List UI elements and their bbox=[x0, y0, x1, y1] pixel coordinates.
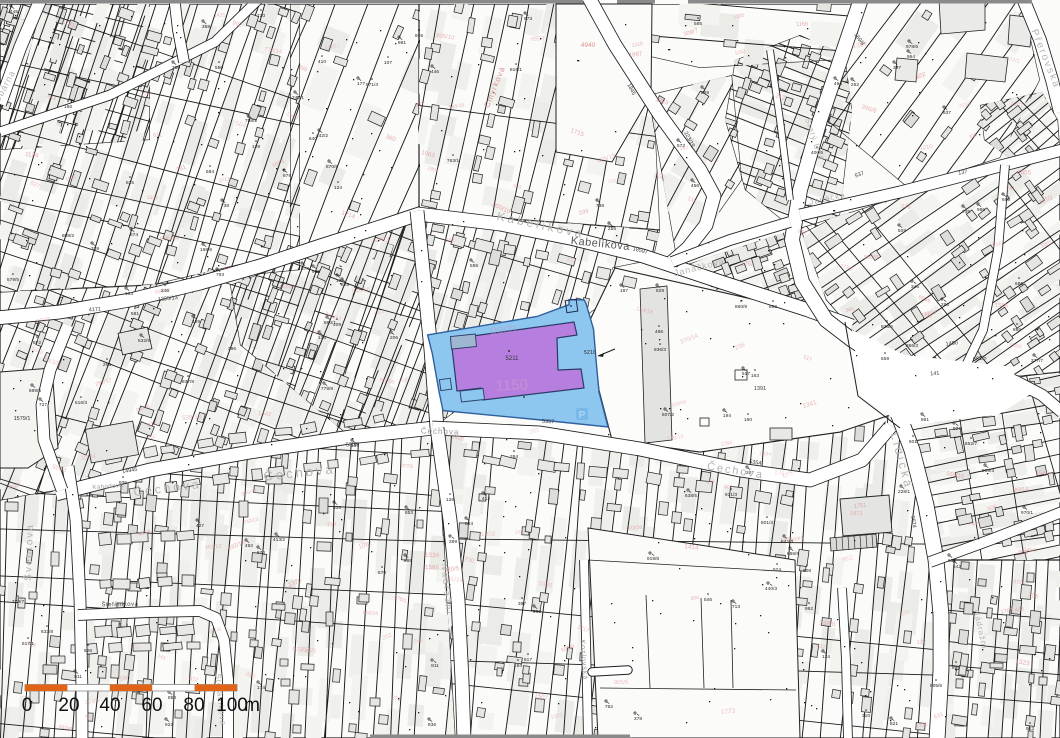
svg-text:637: 637 bbox=[943, 110, 951, 116]
svg-text:336: 336 bbox=[608, 178, 617, 185]
svg-text:194: 194 bbox=[514, 663, 522, 669]
svg-text:738: 738 bbox=[221, 203, 229, 209]
svg-text:655/7: 655/7 bbox=[531, 36, 545, 43]
svg-text:Štefánikova: Štefánikova bbox=[101, 601, 138, 609]
svg-text:579/5: 579/5 bbox=[7, 277, 20, 283]
svg-text:446: 446 bbox=[431, 69, 439, 75]
svg-text:852/7: 852/7 bbox=[965, 441, 978, 447]
svg-text:585: 585 bbox=[694, 21, 702, 27]
svg-text:816/1: 816/1 bbox=[510, 67, 523, 73]
svg-text:829: 829 bbox=[656, 288, 664, 294]
svg-text:P: P bbox=[579, 410, 586, 421]
svg-text:919/8: 919/8 bbox=[647, 556, 660, 562]
svg-text:581: 581 bbox=[131, 311, 139, 317]
svg-text:633/8: 633/8 bbox=[41, 629, 54, 635]
svg-text:978/6: 978/6 bbox=[906, 44, 919, 50]
svg-text:262: 262 bbox=[851, 82, 859, 88]
svg-text:1585: 1585 bbox=[425, 564, 440, 571]
svg-text:720: 720 bbox=[257, 13, 265, 19]
svg-text:569: 569 bbox=[701, 90, 709, 96]
svg-text:617/1: 617/1 bbox=[22, 641, 35, 647]
svg-text:poch.: poch. bbox=[490, 321, 520, 337]
svg-text:427: 427 bbox=[196, 523, 204, 529]
svg-text:686: 686 bbox=[1015, 281, 1023, 287]
svg-text:923: 923 bbox=[1026, 726, 1034, 732]
svg-text:397: 397 bbox=[518, 601, 526, 607]
svg-text:20: 20 bbox=[58, 695, 79, 716]
svg-text:5210: 5210 bbox=[584, 350, 596, 356]
svg-text:1391: 1391 bbox=[754, 386, 766, 392]
svg-text:808/2: 808/2 bbox=[62, 233, 75, 239]
svg-text:749/1: 749/1 bbox=[292, 95, 305, 101]
svg-text:532/9: 532/9 bbox=[138, 338, 151, 344]
svg-text:516/3: 516/3 bbox=[75, 400, 88, 406]
svg-text:931/3: 931/3 bbox=[725, 492, 738, 498]
svg-text:466: 466 bbox=[655, 329, 663, 335]
svg-text:163: 163 bbox=[751, 373, 759, 379]
svg-text:527/13: 527/13 bbox=[373, 237, 390, 244]
svg-text:825: 825 bbox=[126, 180, 134, 186]
svg-text:166: 166 bbox=[64, 104, 72, 110]
svg-text:4171: 4171 bbox=[89, 307, 102, 314]
svg-text:889/5: 889/5 bbox=[29, 388, 42, 394]
svg-text:1394: 1394 bbox=[759, 451, 772, 458]
svg-text:779/8: 779/8 bbox=[321, 386, 334, 392]
svg-text:881: 881 bbox=[398, 40, 406, 46]
svg-text:1166: 1166 bbox=[796, 22, 808, 28]
svg-text:187: 187 bbox=[620, 288, 628, 294]
svg-text:811: 811 bbox=[431, 663, 439, 669]
svg-text:555: 555 bbox=[470, 263, 478, 269]
svg-text:163: 163 bbox=[125, 291, 133, 297]
svg-text:429: 429 bbox=[192, 319, 200, 325]
svg-text:762: 762 bbox=[605, 704, 613, 710]
svg-text:177: 177 bbox=[357, 81, 365, 87]
svg-text:801/4: 801/4 bbox=[761, 520, 774, 526]
svg-text:874: 874 bbox=[130, 232, 138, 238]
svg-text:129: 129 bbox=[252, 144, 260, 150]
svg-text:845/4: 845/4 bbox=[1023, 547, 1037, 554]
svg-text:174: 174 bbox=[257, 685, 265, 691]
svg-text:713: 713 bbox=[732, 604, 740, 610]
svg-text:509: 509 bbox=[898, 228, 906, 234]
svg-text:399: 399 bbox=[449, 539, 457, 545]
svg-text:Čechova: Čechova bbox=[421, 426, 460, 436]
svg-text:827: 827 bbox=[223, 265, 232, 272]
svg-text:m: m bbox=[244, 695, 260, 716]
svg-text:137: 137 bbox=[958, 169, 968, 176]
svg-text:507/2: 507/2 bbox=[662, 412, 675, 418]
svg-text:526: 526 bbox=[84, 648, 92, 654]
svg-text:124: 124 bbox=[822, 654, 830, 660]
svg-text:329: 329 bbox=[91, 246, 99, 252]
svg-text:445: 445 bbox=[10, 9, 18, 15]
svg-text:299: 299 bbox=[404, 558, 412, 564]
svg-text:603: 603 bbox=[724, 484, 733, 491]
svg-text:265: 265 bbox=[103, 362, 111, 368]
svg-text:456: 456 bbox=[691, 183, 699, 189]
svg-text:835: 835 bbox=[333, 505, 341, 511]
svg-text:638/5: 638/5 bbox=[685, 493, 698, 499]
svg-text:241: 241 bbox=[1006, 186, 1015, 192]
svg-text:793: 793 bbox=[216, 272, 224, 278]
svg-text:806: 806 bbox=[690, 595, 699, 602]
svg-text:872: 872 bbox=[33, 340, 41, 346]
svg-text:870/5: 870/5 bbox=[326, 164, 339, 170]
svg-text:132: 132 bbox=[916, 639, 926, 646]
svg-text:979: 979 bbox=[283, 173, 291, 179]
svg-text:905/5: 905/5 bbox=[930, 683, 943, 689]
svg-text:260: 260 bbox=[414, 638, 423, 645]
svg-text:617: 617 bbox=[524, 657, 532, 663]
svg-text:763/1: 763/1 bbox=[447, 158, 460, 164]
svg-text:413/2: 413/2 bbox=[273, 537, 286, 543]
svg-text:542: 542 bbox=[953, 564, 961, 570]
svg-text:853: 853 bbox=[405, 510, 413, 516]
svg-text:922: 922 bbox=[165, 722, 173, 728]
svg-text:524: 524 bbox=[773, 567, 781, 573]
svg-text:834: 834 bbox=[465, 521, 473, 527]
svg-text:661: 661 bbox=[914, 73, 926, 81]
svg-text:194: 194 bbox=[723, 413, 731, 419]
svg-text:992: 992 bbox=[805, 606, 813, 612]
svg-text:440/3: 440/3 bbox=[765, 586, 778, 592]
svg-text:1150: 1150 bbox=[495, 376, 528, 394]
svg-text:358: 358 bbox=[202, 24, 210, 30]
svg-text:80: 80 bbox=[183, 695, 204, 716]
svg-text:837/8: 837/8 bbox=[182, 379, 195, 385]
svg-text:965: 965 bbox=[415, 33, 423, 39]
svg-text:970/1: 970/1 bbox=[1021, 510, 1034, 516]
svg-text:249/8: 249/8 bbox=[819, 620, 836, 628]
svg-text:60: 60 bbox=[141, 695, 162, 716]
svg-text:377/7: 377/7 bbox=[1031, 358, 1044, 364]
svg-text:377/5: 377/5 bbox=[401, 463, 414, 470]
svg-text:902: 902 bbox=[533, 609, 541, 615]
svg-text:40: 40 bbox=[99, 695, 120, 716]
svg-text:938/2: 938/2 bbox=[881, 324, 894, 330]
svg-text:650/16: 650/16 bbox=[363, 610, 379, 617]
svg-text:821: 821 bbox=[890, 721, 898, 727]
svg-text:546: 546 bbox=[704, 597, 712, 603]
svg-text:550/4: 550/4 bbox=[864, 255, 878, 261]
svg-text:936/3: 936/3 bbox=[654, 347, 667, 353]
svg-text:397: 397 bbox=[893, 65, 901, 71]
svg-text:968: 968 bbox=[312, 269, 320, 275]
svg-text:637: 637 bbox=[948, 558, 956, 564]
svg-text:1555: 1555 bbox=[1017, 169, 1032, 177]
svg-text:1232: 1232 bbox=[147, 195, 158, 201]
svg-text:246: 246 bbox=[161, 288, 169, 294]
svg-text:674: 674 bbox=[257, 550, 265, 556]
svg-text:642/3: 642/3 bbox=[781, 539, 794, 545]
svg-text:128: 128 bbox=[446, 497, 454, 503]
svg-text:911: 911 bbox=[74, 674, 82, 680]
svg-text:283: 283 bbox=[941, 302, 949, 308]
svg-text:378: 378 bbox=[634, 716, 642, 722]
svg-text:141: 141 bbox=[930, 371, 940, 378]
svg-text:1752: 1752 bbox=[741, 261, 755, 268]
svg-text:0: 0 bbox=[22, 695, 33, 716]
svg-text:666/9: 666/9 bbox=[787, 551, 800, 557]
svg-text:659: 659 bbox=[881, 356, 889, 362]
svg-text:410: 410 bbox=[318, 59, 326, 65]
svg-text:862: 862 bbox=[769, 304, 777, 310]
svg-text:927: 927 bbox=[953, 426, 961, 432]
svg-text:409: 409 bbox=[333, 322, 341, 328]
svg-text:412: 412 bbox=[482, 496, 490, 502]
svg-text:836: 836 bbox=[428, 722, 436, 728]
svg-text:571/4: 571/4 bbox=[366, 82, 379, 88]
svg-text:345: 345 bbox=[911, 284, 919, 290]
svg-text:572: 572 bbox=[677, 143, 685, 149]
svg-text:738: 738 bbox=[596, 203, 604, 209]
svg-text:986: 986 bbox=[977, 207, 985, 213]
svg-text:176: 176 bbox=[774, 469, 786, 477]
svg-text:5358: 5358 bbox=[346, 442, 359, 449]
svg-text:4940: 4940 bbox=[581, 42, 596, 49]
svg-text:1534: 1534 bbox=[425, 552, 440, 559]
svg-text:886: 886 bbox=[1013, 327, 1021, 333]
svg-text:576: 576 bbox=[901, 204, 911, 211]
svg-text:396: 396 bbox=[228, 346, 236, 352]
svg-text:360/16: 360/16 bbox=[283, 284, 299, 290]
svg-text:780: 780 bbox=[172, 65, 180, 71]
svg-text:310: 310 bbox=[862, 713, 870, 719]
svg-text:1579/1: 1579/1 bbox=[14, 416, 31, 422]
svg-text:727: 727 bbox=[39, 402, 47, 408]
svg-text:1506: 1506 bbox=[995, 303, 1008, 309]
svg-text:1124: 1124 bbox=[25, 151, 39, 159]
svg-text:698: 698 bbox=[1002, 197, 1010, 203]
svg-text:808: 808 bbox=[803, 568, 811, 574]
svg-text:842: 842 bbox=[445, 238, 455, 244]
svg-text:160: 160 bbox=[744, 417, 752, 423]
svg-text:1442: 1442 bbox=[258, 411, 272, 418]
svg-text:124: 124 bbox=[334, 185, 342, 191]
svg-text:860/9: 860/9 bbox=[735, 304, 748, 310]
svg-text:1202: 1202 bbox=[481, 531, 496, 538]
svg-text:584: 584 bbox=[206, 169, 214, 175]
svg-text:1425: 1425 bbox=[214, 13, 225, 19]
svg-text:366/3: 366/3 bbox=[906, 343, 919, 349]
svg-text:284: 284 bbox=[510, 454, 518, 460]
svg-text:1872: 1872 bbox=[850, 511, 863, 517]
svg-text:1773: 1773 bbox=[721, 708, 736, 716]
svg-text:579: 579 bbox=[378, 570, 386, 576]
svg-text:492: 492 bbox=[245, 543, 253, 549]
svg-text:854: 854 bbox=[168, 695, 176, 701]
svg-text:136: 136 bbox=[318, 335, 326, 341]
svg-text:964: 964 bbox=[907, 54, 915, 60]
svg-text:255: 255 bbox=[608, 226, 616, 232]
svg-text:5211: 5211 bbox=[506, 356, 520, 362]
svg-text:965/5: 965/5 bbox=[614, 680, 628, 686]
svg-text:442/2: 442/2 bbox=[316, 133, 329, 139]
svg-text:601: 601 bbox=[909, 439, 917, 445]
svg-text:494: 494 bbox=[834, 81, 842, 87]
svg-text:739: 739 bbox=[962, 209, 970, 215]
svg-text:904: 904 bbox=[146, 435, 155, 441]
svg-text:674: 674 bbox=[301, 266, 309, 272]
svg-text:881: 881 bbox=[921, 417, 929, 423]
svg-text:779/7: 779/7 bbox=[12, 599, 25, 605]
svg-text:758/1: 758/1 bbox=[245, 118, 258, 124]
svg-text:539/13: 539/13 bbox=[182, 414, 202, 422]
svg-text:206: 206 bbox=[390, 335, 398, 341]
svg-text:107: 107 bbox=[384, 60, 392, 66]
svg-text:550: 550 bbox=[215, 65, 223, 71]
svg-text:168/6: 168/6 bbox=[200, 247, 213, 253]
svg-text:673: 673 bbox=[524, 16, 532, 22]
svg-text:5357: 5357 bbox=[542, 419, 555, 426]
